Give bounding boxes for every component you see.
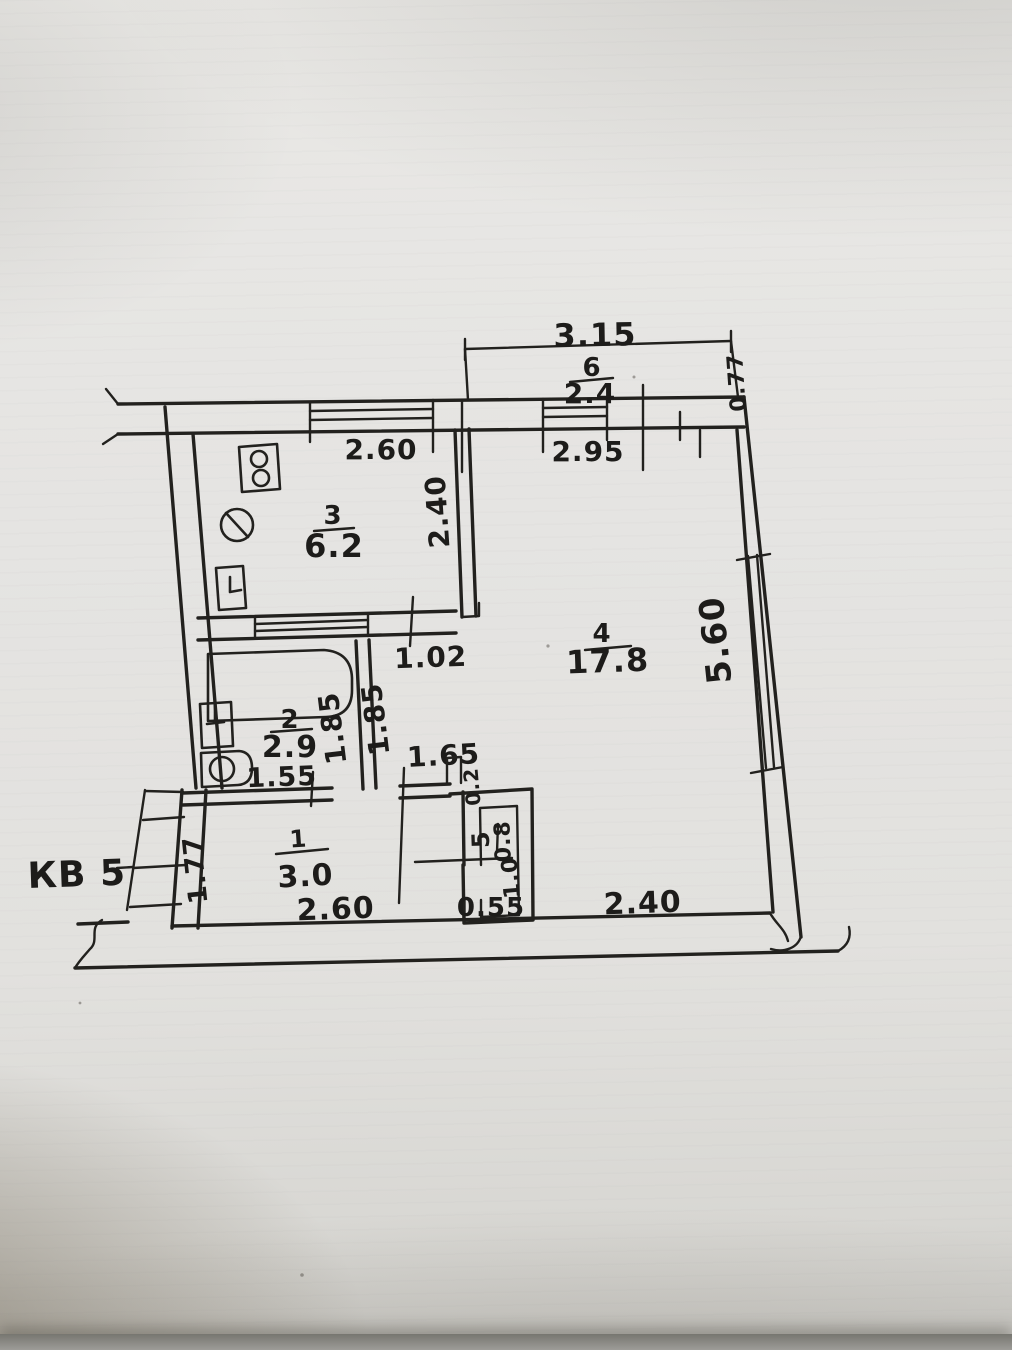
dim-bath-width: 1.55 [246, 761, 318, 794]
wall-left-outer [165, 407, 196, 788]
wall-break-flare [103, 434, 118, 444]
dim-balcony-depth: 0.77 [723, 353, 752, 413]
dim-tick [410, 597, 413, 646]
closet: 0.2 5 0.8 1.0 0.55 [415, 757, 533, 923]
toilet-icon [201, 751, 252, 787]
dim-hall-width: 2.60 [296, 891, 375, 929]
transom-icon [255, 620, 368, 624]
paper-bottom-edge [0, 1334, 1012, 1350]
hall: КВ 5 1 3.0 1.77 2.60 [27, 790, 375, 928]
room-area-closet: 0.8 [490, 820, 516, 863]
dim-tick [737, 554, 770, 560]
dim-living-width: 2.40 [603, 885, 682, 923]
paper-specks [79, 376, 636, 1277]
kitchen: 2.60 3 6.2 2.40 1.02 [198, 429, 479, 675]
sink-icon [226, 513, 248, 537]
dim-kitchen-door: 1.02 [394, 640, 468, 676]
dim-hall-depth: 1.77 [178, 834, 215, 905]
wall-corridor-hall [400, 796, 450, 798]
heater-icon [230, 577, 241, 592]
wall-break-squiggle-right [770, 913, 788, 941]
wall-break-flare [106, 389, 118, 404]
wall-kitchen-bath [198, 633, 456, 640]
dim-closet-width: 0.55 [457, 893, 525, 923]
apartment-label: КВ 5 [27, 853, 127, 897]
dim-living-depth: 5.60 [692, 594, 741, 686]
kitchen-window-icon [310, 418, 433, 420]
photo-of-paper: 3.15 6 2.4 0.77 [0, 0, 1012, 1350]
wall-left-inner [193, 434, 222, 788]
wall-top-inner [118, 427, 744, 434]
wall-top-outer [118, 397, 744, 404]
wall-break-hook-right [838, 927, 850, 951]
balcony-side [465, 349, 468, 400]
room-area-kitchen: 6.2 [304, 527, 364, 565]
landing-step [143, 817, 184, 820]
wall-break-squiggle-left [75, 920, 102, 968]
wall-corridor-hall [400, 784, 450, 786]
wall-right-outer [744, 397, 801, 937]
transom-icon [255, 627, 368, 631]
room-area-living: 17.8 [566, 641, 650, 682]
dim-kitchen-window: 2.60 [344, 433, 417, 466]
living-room: 2.95 4 17.8 5.60 2.40 [551, 435, 783, 922]
dim-living-window: 2.95 [551, 435, 624, 468]
dim-balcony-width: 3.15 [553, 315, 637, 354]
stove-burner-icon [253, 470, 269, 486]
dim-kitchen-depth: 2.40 [419, 474, 457, 549]
landing-wall [127, 790, 145, 910]
room-area-hall: 3.0 [277, 858, 335, 896]
room-number-hall: 1 [289, 824, 309, 853]
wall-bottom-outer [75, 951, 838, 968]
wall-kitchen-living [469, 429, 476, 616]
dim-tick [399, 768, 404, 903]
kitchen-window-icon [310, 409, 433, 411]
wall-kitchen-bath [198, 611, 456, 618]
room-area-balcony: 2.4 [564, 377, 617, 410]
landing-step [145, 791, 183, 792]
stove-burner-icon [251, 451, 267, 467]
living-window-icon [543, 416, 607, 417]
wall-bottom-top-left [78, 922, 128, 924]
floor-plan-sketch: 3.15 6 2.4 0.77 [0, 0, 1012, 1350]
room-area-bath: 2.9 [262, 730, 318, 765]
